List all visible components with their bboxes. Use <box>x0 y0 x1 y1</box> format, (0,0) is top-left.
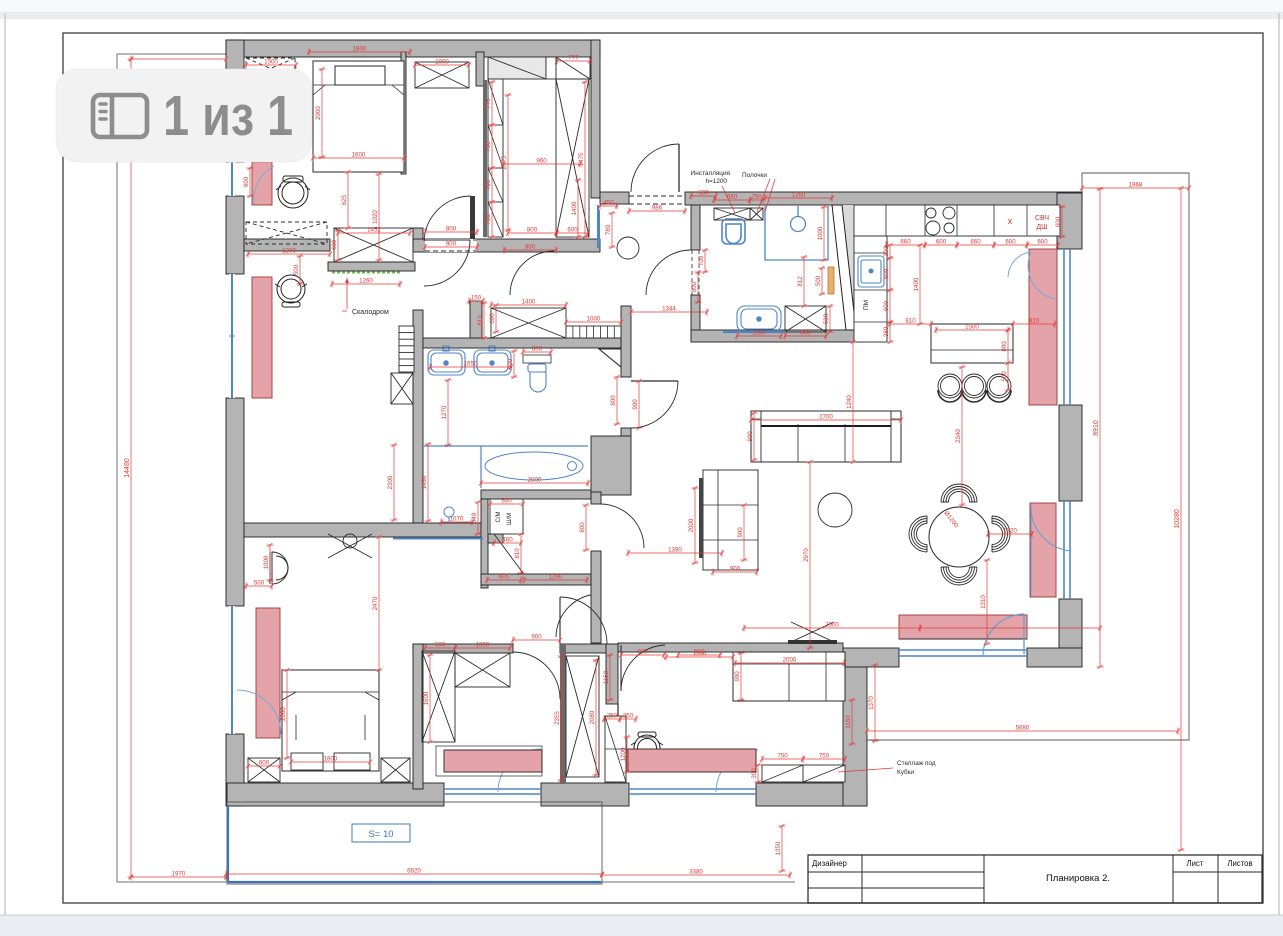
svg-text:1000: 1000 <box>263 555 270 569</box>
svg-text:3380: 3380 <box>689 869 703 876</box>
svg-text:800: 800 <box>691 281 698 292</box>
svg-text:600: 600 <box>1037 239 1048 246</box>
svg-text:2470: 2470 <box>372 596 379 610</box>
svg-text:450: 450 <box>603 200 614 207</box>
svg-text:1260: 1260 <box>359 278 373 285</box>
svg-text:300: 300 <box>883 246 890 257</box>
svg-text:810: 810 <box>514 548 521 559</box>
svg-text:1000: 1000 <box>476 642 490 649</box>
svg-text:810: 810 <box>1029 318 1040 325</box>
svg-text:2340: 2340 <box>955 429 962 443</box>
svg-text:1160: 1160 <box>845 715 852 729</box>
svg-text:500: 500 <box>293 264 300 275</box>
svg-text:1150: 1150 <box>603 670 610 684</box>
svg-text:600: 600 <box>331 239 338 250</box>
svg-text:1370: 1370 <box>868 696 875 710</box>
svg-text:ПМ: ПМ <box>863 300 870 310</box>
svg-text:900: 900 <box>730 566 741 573</box>
svg-text:ДШ: ДШ <box>1036 224 1047 231</box>
svg-text:1350: 1350 <box>775 841 782 855</box>
svg-text:2000: 2000 <box>688 518 695 532</box>
svg-text:1 из 1: 1 из 1 <box>163 85 293 148</box>
svg-text:380: 380 <box>883 326 890 337</box>
svg-text:600: 600 <box>259 760 270 767</box>
svg-text:900: 900 <box>734 671 741 682</box>
svg-text:812: 812 <box>797 276 804 287</box>
svg-text:2000: 2000 <box>315 106 322 120</box>
svg-text:500: 500 <box>815 275 822 286</box>
svg-text:1800: 1800 <box>324 756 338 763</box>
svg-text:Инсталляция: Инсталляция <box>691 170 731 177</box>
svg-text:800: 800 <box>527 227 538 234</box>
svg-text:800: 800 <box>800 330 811 337</box>
svg-text:1000: 1000 <box>587 316 601 323</box>
svg-text:800: 800 <box>579 522 586 533</box>
svg-text:2970: 2970 <box>803 548 810 562</box>
svg-text:800: 800 <box>532 346 543 353</box>
svg-text:625: 625 <box>341 194 348 205</box>
svg-text:150: 150 <box>471 295 482 302</box>
svg-text:610: 610 <box>477 315 484 326</box>
svg-text:1270: 1270 <box>441 405 448 419</box>
svg-text:2600: 2600 <box>825 622 839 629</box>
svg-text:2675: 2675 <box>501 155 508 169</box>
svg-text:800: 800 <box>1001 341 1008 352</box>
svg-text:1650: 1650 <box>464 361 478 368</box>
svg-text:250: 250 <box>607 713 618 720</box>
svg-text:800: 800 <box>446 226 457 233</box>
svg-text:500: 500 <box>1001 371 1008 382</box>
svg-text:300: 300 <box>751 768 758 779</box>
svg-text:Листов: Листов <box>1227 859 1252 868</box>
svg-text:1400: 1400 <box>913 277 920 291</box>
svg-text:Планировка 2.: Планировка 2. <box>1046 873 1110 884</box>
svg-text:750: 750 <box>777 753 788 760</box>
svg-text:750: 750 <box>819 753 830 760</box>
svg-text:2000: 2000 <box>528 477 542 484</box>
svg-text:960: 960 <box>536 158 547 165</box>
svg-text:250: 250 <box>623 713 634 720</box>
svg-text:780: 780 <box>605 224 612 235</box>
svg-text:600: 600 <box>1005 239 1016 246</box>
svg-text:900: 900 <box>243 176 250 187</box>
svg-text:1000: 1000 <box>435 59 449 66</box>
svg-text:660: 660 <box>970 239 981 246</box>
svg-text:x: x <box>1008 216 1013 226</box>
svg-text:500: 500 <box>507 358 514 369</box>
svg-text:S= 10: S= 10 <box>368 829 393 840</box>
svg-text:Дизайнер: Дизайнер <box>812 859 848 868</box>
svg-text:600: 600 <box>1055 216 1062 227</box>
svg-text:900: 900 <box>737 527 744 538</box>
svg-text:10280: 10280 <box>1174 509 1181 529</box>
svg-text:900: 900 <box>525 244 536 251</box>
svg-text:900: 900 <box>446 241 457 248</box>
svg-text:2355: 2355 <box>554 711 561 725</box>
svg-text:1260: 1260 <box>549 574 563 581</box>
svg-text:700: 700 <box>698 255 705 266</box>
svg-text:2080: 2080 <box>589 710 596 724</box>
svg-text:Стеллаж под: Стеллаж под <box>897 760 936 767</box>
svg-text:500: 500 <box>823 313 830 324</box>
svg-text:1400: 1400 <box>522 299 536 306</box>
svg-text:1000: 1000 <box>264 59 278 66</box>
svg-text:1968: 1968 <box>1129 182 1143 189</box>
svg-text:Кубки: Кубки <box>897 768 914 776</box>
svg-text:777: 777 <box>568 55 579 62</box>
svg-text:1070: 1070 <box>450 516 464 523</box>
svg-text:600: 600 <box>489 313 496 324</box>
svg-text:600: 600 <box>435 642 446 649</box>
svg-text:600: 600 <box>883 300 890 311</box>
svg-text:600: 600 <box>936 239 947 246</box>
svg-text:2700: 2700 <box>819 414 833 421</box>
svg-text:1800: 1800 <box>353 46 367 53</box>
svg-text:1000: 1000 <box>817 226 824 240</box>
svg-text:5680: 5680 <box>1016 725 1030 732</box>
svg-text:605: 605 <box>499 574 510 581</box>
svg-text:6820: 6820 <box>407 868 421 875</box>
svg-text:700: 700 <box>485 214 492 225</box>
svg-text:1600: 1600 <box>423 691 430 705</box>
svg-text:h=1200: h=1200 <box>705 178 727 185</box>
svg-text:1344: 1344 <box>662 306 676 313</box>
svg-text:1310: 1310 <box>980 595 987 609</box>
svg-text:Полочки: Полочки <box>742 172 767 179</box>
svg-text:1240: 1240 <box>846 395 853 409</box>
svg-text:900: 900 <box>747 431 754 442</box>
svg-text:775: 775 <box>485 98 492 109</box>
svg-text:1490: 1490 <box>421 475 428 489</box>
svg-text:1320: 1320 <box>1003 528 1017 535</box>
svg-text:Скалодром: Скалодром <box>352 309 389 316</box>
svg-text:2300: 2300 <box>387 475 394 489</box>
svg-text:900: 900 <box>632 399 639 410</box>
svg-text:800: 800 <box>610 395 617 406</box>
svg-text:СВЧ: СВЧ <box>1035 215 1049 222</box>
svg-text:1390: 1390 <box>668 547 682 554</box>
svg-text:1020: 1020 <box>372 210 379 224</box>
svg-text:2000: 2000 <box>783 657 797 664</box>
svg-text:Ш/М: Ш/М <box>507 513 513 525</box>
svg-text:1180: 1180 <box>752 330 766 337</box>
svg-text:14480: 14480 <box>124 458 131 478</box>
svg-text:1600: 1600 <box>352 152 366 159</box>
svg-text:1500: 1500 <box>965 324 979 331</box>
svg-text:Лист: Лист <box>1187 859 1204 868</box>
svg-text:680: 680 <box>698 190 709 197</box>
svg-text:700: 700 <box>485 179 492 190</box>
svg-text:1970: 1970 <box>172 871 186 878</box>
svg-text:1200: 1200 <box>282 248 296 255</box>
svg-text:600: 600 <box>883 268 890 279</box>
svg-text:1400: 1400 <box>571 201 578 215</box>
svg-text:660: 660 <box>900 239 911 246</box>
svg-text:986: 986 <box>652 205 663 212</box>
svg-text:810: 810 <box>905 318 916 325</box>
svg-text:600: 600 <box>501 498 512 505</box>
svg-text:1200: 1200 <box>620 747 627 761</box>
svg-text:540: 540 <box>471 512 478 523</box>
svg-text:1452: 1452 <box>367 227 381 234</box>
svg-text:460: 460 <box>502 537 513 544</box>
svg-text:С/М: С/М <box>496 512 502 523</box>
svg-text:900: 900 <box>531 634 542 641</box>
svg-text:250: 250 <box>751 194 762 201</box>
svg-text:500: 500 <box>254 580 265 587</box>
svg-text:600: 600 <box>567 227 578 234</box>
svg-text:700: 700 <box>485 141 492 152</box>
svg-text:900: 900 <box>637 649 648 656</box>
svg-text:1260: 1260 <box>792 192 806 199</box>
svg-text:2000: 2000 <box>280 707 287 721</box>
svg-text:1200: 1200 <box>693 651 707 658</box>
svg-text:8910: 8910 <box>1093 420 1100 436</box>
